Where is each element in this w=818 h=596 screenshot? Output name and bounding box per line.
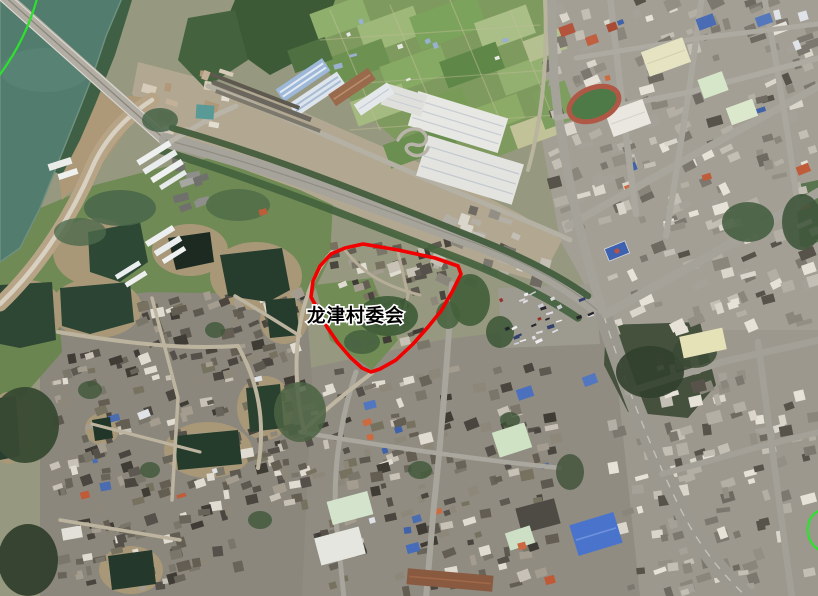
tree-patch: [344, 330, 380, 354]
building: [282, 459, 289, 466]
tree-patch: [140, 462, 160, 478]
tree-patch: [408, 461, 432, 479]
tree-patch: [205, 322, 225, 338]
tree-patch: [274, 382, 326, 442]
building: [467, 539, 474, 545]
building-roof: [196, 104, 215, 119]
building: [667, 562, 679, 572]
building: [346, 479, 359, 490]
tree-patch: [0, 524, 58, 596]
building: [165, 375, 171, 381]
building: [179, 515, 191, 524]
tree-patch: [486, 316, 514, 348]
tree-patch: [142, 108, 178, 132]
building: [370, 471, 384, 483]
building: [636, 567, 645, 574]
tree-patch: [556, 454, 584, 490]
pond: [108, 550, 156, 590]
building: [406, 278, 412, 283]
building: [330, 261, 339, 269]
building: [212, 546, 223, 557]
building: [198, 509, 211, 516]
building: [192, 558, 202, 568]
building: [404, 527, 412, 534]
building: [206, 473, 215, 481]
building: [67, 353, 77, 364]
building: [76, 558, 84, 565]
building: [631, 484, 644, 494]
building: [120, 419, 131, 430]
building: [58, 572, 67, 579]
building: [370, 486, 381, 497]
landmark-building: [196, 104, 215, 119]
tree-patch: [54, 218, 106, 246]
pond: [174, 430, 242, 470]
village-label: 龙津村委会: [307, 305, 405, 327]
satellite-layers: [0, 0, 818, 596]
building: [807, 412, 818, 423]
tree-patch: [248, 511, 272, 529]
satellite-map-image: 龙津村委会: [0, 0, 818, 596]
building: [607, 461, 619, 474]
pond: [220, 248, 290, 302]
building: [660, 534, 668, 542]
building: [329, 242, 338, 251]
building: [479, 508, 491, 518]
map-viewport[interactable]: 龙津村委会: [0, 0, 818, 596]
building: [62, 378, 68, 385]
tree-patch: [206, 189, 270, 221]
building: [702, 423, 712, 436]
tree-patch: [722, 202, 774, 242]
tree-patch: [78, 381, 102, 399]
